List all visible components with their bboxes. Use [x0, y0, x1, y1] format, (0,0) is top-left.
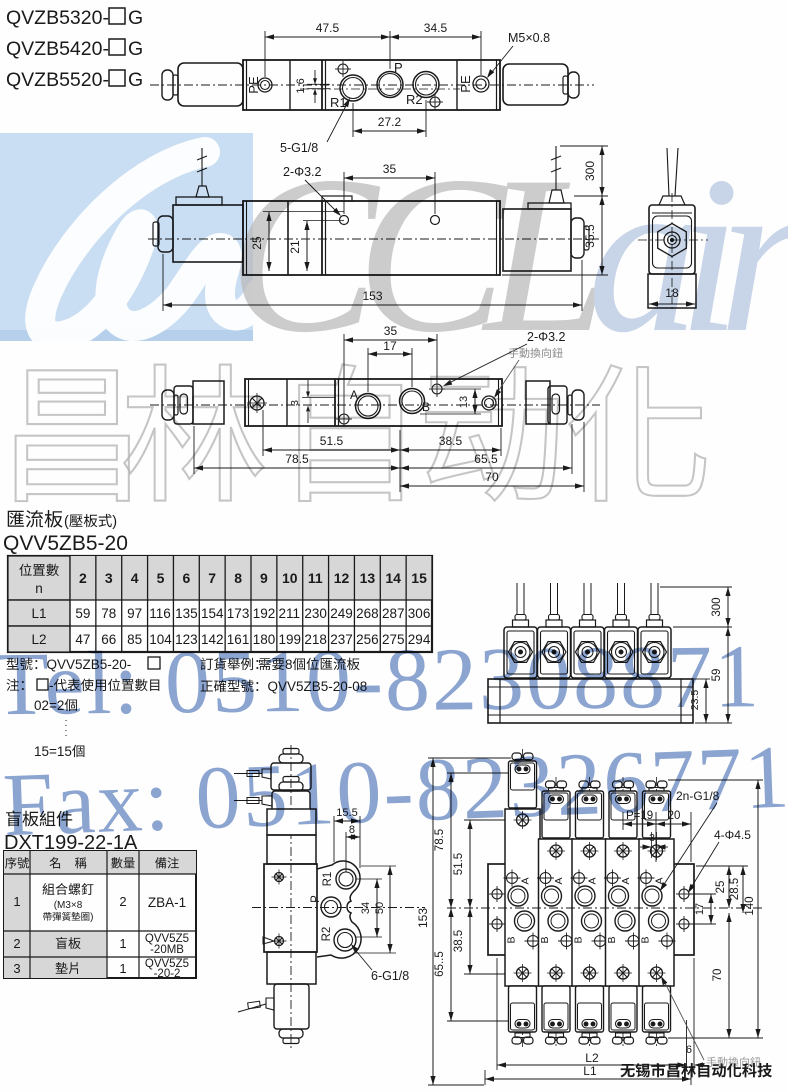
svg-text:CCLair: CCLair: [228, 129, 788, 379]
svg-text:51.5: 51.5: [453, 853, 465, 875]
svg-text:9: 9: [260, 570, 268, 586]
svg-text:27.2: 27.2: [378, 115, 402, 129]
svg-text:QVV5ZB5-20: QVV5ZB5-20: [3, 532, 128, 555]
svg-text:P: P: [310, 895, 322, 903]
svg-text:1: 1: [13, 894, 20, 909]
svg-text:M5×0.8: M5×0.8: [508, 31, 550, 45]
svg-text:47.5: 47.5: [316, 21, 340, 35]
svg-text:A: A: [587, 877, 599, 884]
svg-text:12: 12: [334, 570, 350, 586]
svg-text:78: 78: [101, 606, 116, 621]
svg-text:65..5: 65..5: [434, 951, 446, 977]
svg-text:211: 211: [279, 606, 301, 621]
svg-text:50: 50: [374, 902, 386, 914]
svg-text:1: 1: [119, 961, 126, 976]
svg-text:153: 153: [416, 908, 430, 928]
svg-text:L1: L1: [583, 1064, 597, 1078]
svg-text:G: G: [128, 69, 143, 91]
svg-text:ZBA-1: ZBA-1: [148, 895, 186, 910]
svg-text:QVZB5320-: QVZB5320-: [6, 7, 109, 29]
svg-text:6: 6: [183, 570, 191, 586]
svg-text:L2: L2: [585, 1051, 599, 1065]
svg-text:A: A: [553, 877, 565, 884]
svg-text:2: 2: [119, 894, 126, 909]
svg-text:7: 7: [208, 570, 216, 586]
svg-text:L1: L1: [32, 606, 47, 621]
svg-text:154: 154: [201, 606, 224, 621]
svg-text:140: 140: [744, 896, 756, 915]
svg-text:-20-2: -20-2: [154, 968, 181, 980]
svg-text:(M3×8: (M3×8: [54, 900, 83, 911]
svg-text:3: 3: [649, 832, 655, 844]
svg-text:P: P: [394, 60, 403, 75]
svg-text:34: 34: [360, 902, 372, 914]
svg-text:300: 300: [711, 597, 723, 616]
svg-text:2: 2: [13, 936, 20, 951]
svg-text:15: 15: [411, 570, 427, 586]
svg-text:3: 3: [13, 961, 20, 976]
svg-text:1: 1: [119, 936, 126, 951]
svg-text:B: B: [506, 936, 518, 943]
svg-text:6: 6: [686, 1044, 692, 1056]
svg-text:11: 11: [308, 570, 323, 586]
svg-text:59: 59: [75, 606, 90, 621]
svg-text:(: (: [64, 514, 69, 530]
svg-text:B: B: [573, 936, 585, 943]
svg-text:13: 13: [458, 396, 470, 408]
svg-text:2: 2: [79, 570, 87, 586]
svg-text:QVZB5520-: QVZB5520-: [6, 69, 109, 91]
svg-text:287: 287: [382, 606, 405, 621]
svg-text:): ): [112, 514, 117, 530]
svg-text:78.5: 78.5: [285, 452, 309, 466]
svg-text:51.5: 51.5: [320, 434, 344, 448]
svg-text:B: B: [606, 936, 618, 943]
svg-text:B: B: [640, 936, 652, 943]
svg-text:28.5: 28.5: [729, 878, 741, 900]
svg-text:4: 4: [131, 570, 139, 586]
svg-text:A: A: [520, 877, 532, 884]
svg-text:4-Φ4.5: 4-Φ4.5: [714, 828, 751, 842]
svg-text:PE: PE: [458, 75, 473, 93]
svg-text:n: n: [35, 581, 43, 596]
svg-text:173: 173: [227, 606, 250, 621]
svg-text:Tel: 0510-82308871: Tel: 0510-82308871: [0, 627, 761, 734]
svg-text:13: 13: [360, 570, 376, 586]
svg-text:6-G1/8: 6-G1/8: [371, 969, 409, 983]
svg-text:QVZB5420-: QVZB5420-: [6, 38, 109, 60]
svg-text:116: 116: [149, 606, 171, 621]
svg-text:249: 249: [330, 606, 353, 621]
svg-text:PE: PE: [246, 76, 261, 94]
svg-text:G: G: [128, 38, 143, 60]
svg-text:70: 70: [712, 969, 724, 982]
svg-text:192: 192: [253, 606, 276, 621]
svg-text:G: G: [128, 7, 143, 29]
svg-text:B: B: [539, 936, 551, 943]
svg-text:1.6: 1.6: [295, 78, 307, 93]
svg-text:): ): [90, 912, 93, 923]
svg-text:3: 3: [105, 570, 113, 586]
svg-text:135: 135: [175, 606, 198, 621]
svg-text:R1: R1: [322, 872, 334, 887]
svg-text:230: 230: [304, 606, 327, 621]
svg-text:306: 306: [408, 606, 431, 621]
svg-text:R2: R2: [321, 927, 333, 942]
svg-text:-20MB: -20MB: [150, 944, 184, 956]
svg-text:17: 17: [694, 903, 706, 915]
svg-text:10: 10: [282, 570, 298, 586]
svg-text:R1: R1: [330, 95, 347, 110]
svg-text:R2: R2: [406, 92, 423, 107]
svg-text:5: 5: [157, 570, 165, 586]
svg-text:97: 97: [127, 606, 142, 621]
svg-text:14: 14: [385, 570, 401, 586]
svg-text:A: A: [620, 877, 632, 884]
svg-text:25: 25: [715, 881, 727, 894]
svg-text:34.5: 34.5: [424, 21, 448, 35]
svg-text:8: 8: [234, 570, 242, 586]
svg-text:268: 268: [356, 606, 379, 621]
svg-text:38.5: 38.5: [453, 930, 465, 952]
